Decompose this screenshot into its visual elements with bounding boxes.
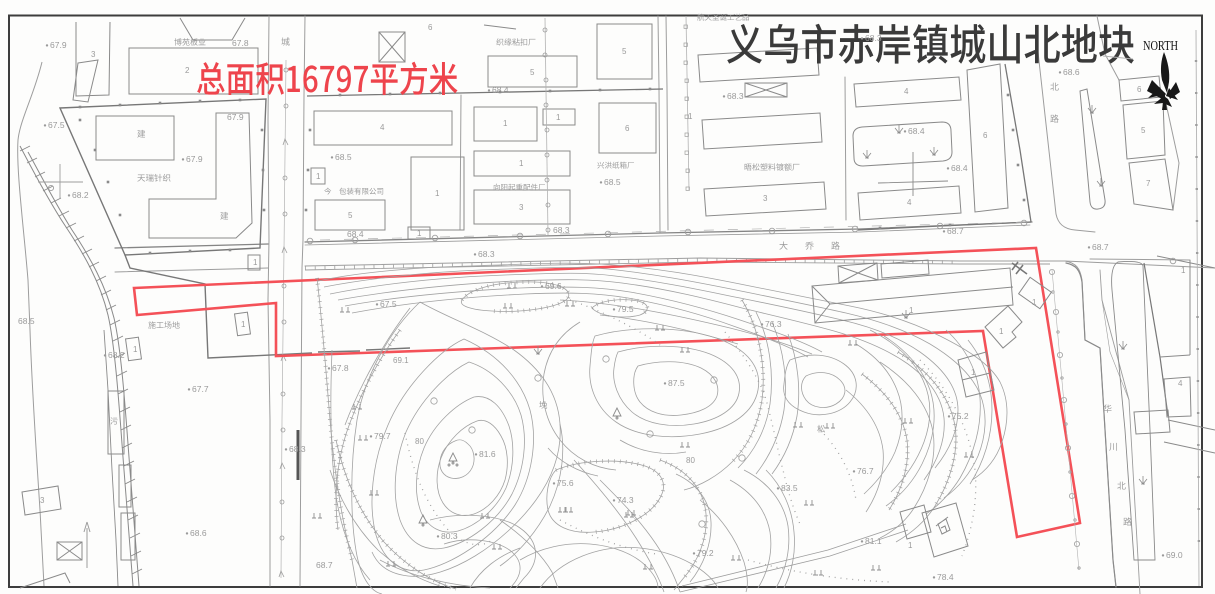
svg-text:1: 1 bbox=[1032, 298, 1037, 307]
svg-text:67.9: 67.9 bbox=[186, 154, 203, 164]
svg-text:81.6: 81.6 bbox=[479, 449, 496, 459]
svg-text:68.3: 68.3 bbox=[865, 33, 882, 43]
svg-text:1: 1 bbox=[253, 258, 258, 267]
svg-text:1: 1 bbox=[971, 368, 976, 377]
svg-text:68.7: 68.7 bbox=[947, 226, 964, 236]
svg-text:1: 1 bbox=[241, 320, 246, 329]
svg-text:68.5: 68.5 bbox=[335, 152, 352, 162]
svg-text:5: 5 bbox=[622, 47, 627, 56]
svg-text:68.2: 68.2 bbox=[72, 190, 89, 200]
svg-text:68.4: 68.4 bbox=[492, 85, 509, 95]
svg-text:1: 1 bbox=[999, 327, 1004, 336]
svg-text:NORTH: NORTH bbox=[1143, 39, 1178, 54]
svg-text:1: 1 bbox=[435, 189, 440, 198]
svg-text:68.3: 68.3 bbox=[478, 249, 495, 259]
svg-text:68.5: 68.5 bbox=[18, 316, 35, 326]
svg-text:6: 6 bbox=[625, 124, 630, 133]
svg-text:4: 4 bbox=[380, 123, 385, 132]
svg-text:1: 1 bbox=[417, 229, 422, 238]
svg-text:79.5: 79.5 bbox=[617, 304, 634, 314]
svg-text:67.8: 67.8 bbox=[332, 363, 349, 373]
svg-text:76.7: 76.7 bbox=[857, 466, 874, 476]
svg-text:68.3: 68.3 bbox=[727, 91, 744, 101]
svg-text:6: 6 bbox=[1137, 85, 1142, 94]
svg-text:80: 80 bbox=[415, 437, 424, 446]
svg-text:87.5: 87.5 bbox=[668, 378, 685, 388]
svg-text:68.6: 68.6 bbox=[1063, 67, 1080, 77]
svg-text:3: 3 bbox=[40, 496, 45, 505]
svg-text:79.2: 79.2 bbox=[697, 548, 714, 558]
svg-text:68.2: 68.2 bbox=[108, 350, 125, 360]
svg-text:7: 7 bbox=[1146, 179, 1151, 188]
svg-text:81.1: 81.1 bbox=[865, 536, 882, 546]
svg-text:68.3: 68.3 bbox=[289, 444, 306, 454]
svg-text:1: 1 bbox=[316, 172, 321, 181]
svg-text:1: 1 bbox=[556, 113, 561, 122]
svg-text:5: 5 bbox=[348, 211, 353, 220]
svg-text:1: 1 bbox=[909, 306, 914, 315]
svg-text:4: 4 bbox=[907, 198, 912, 207]
svg-text:76.3: 76.3 bbox=[765, 319, 782, 329]
svg-text:68.4: 68.4 bbox=[908, 126, 925, 136]
svg-text:1: 1 bbox=[519, 159, 524, 168]
svg-text:69.0: 69.0 bbox=[1166, 550, 1183, 560]
svg-text:79.7: 79.7 bbox=[374, 431, 391, 441]
svg-text:3: 3 bbox=[519, 203, 524, 212]
svg-text:3: 3 bbox=[91, 50, 96, 59]
svg-text:83.5: 83.5 bbox=[781, 483, 798, 493]
svg-text:68.3: 68.3 bbox=[553, 225, 570, 235]
svg-text:69.1: 69.1 bbox=[393, 356, 409, 365]
svg-text:80: 80 bbox=[686, 456, 695, 465]
svg-text:6: 6 bbox=[428, 23, 433, 32]
svg-text:80.3: 80.3 bbox=[441, 531, 458, 541]
svg-text:67.9: 67.9 bbox=[227, 112, 244, 122]
svg-text:1: 1 bbox=[1181, 266, 1186, 275]
svg-text:4: 4 bbox=[904, 87, 909, 96]
svg-text:5: 5 bbox=[1141, 126, 1146, 135]
svg-text:68.4: 68.4 bbox=[951, 163, 968, 173]
svg-text:68.4: 68.4 bbox=[347, 229, 364, 239]
svg-text:68.5: 68.5 bbox=[604, 177, 621, 187]
svg-text:2: 2 bbox=[185, 66, 190, 75]
svg-text:68.7: 68.7 bbox=[1092, 242, 1109, 252]
svg-text:67.7: 67.7 bbox=[192, 384, 209, 394]
svg-text:1: 1 bbox=[503, 119, 508, 128]
svg-text:69.6: 69.6 bbox=[545, 281, 562, 291]
svg-text:74.3: 74.3 bbox=[617, 495, 634, 505]
svg-text:75.6: 75.6 bbox=[557, 478, 574, 488]
svg-text:5: 5 bbox=[530, 68, 535, 77]
svg-text:75.2: 75.2 bbox=[952, 411, 969, 421]
svg-text:1: 1 bbox=[908, 541, 913, 550]
svg-text:68.7: 68.7 bbox=[316, 560, 333, 570]
svg-text:67.8: 67.8 bbox=[232, 38, 249, 48]
svg-text:6: 6 bbox=[983, 131, 988, 140]
svg-text:68.6: 68.6 bbox=[190, 528, 207, 538]
svg-text:1: 1 bbox=[688, 112, 693, 121]
svg-text:78.4: 78.4 bbox=[937, 572, 954, 582]
svg-text:67.5: 67.5 bbox=[48, 120, 65, 130]
svg-text:3: 3 bbox=[763, 194, 768, 203]
svg-text:67.5: 67.5 bbox=[380, 299, 397, 309]
svg-text:1: 1 bbox=[133, 345, 138, 354]
svg-text:4: 4 bbox=[1178, 379, 1183, 388]
svg-text:67.9: 67.9 bbox=[50, 40, 67, 50]
